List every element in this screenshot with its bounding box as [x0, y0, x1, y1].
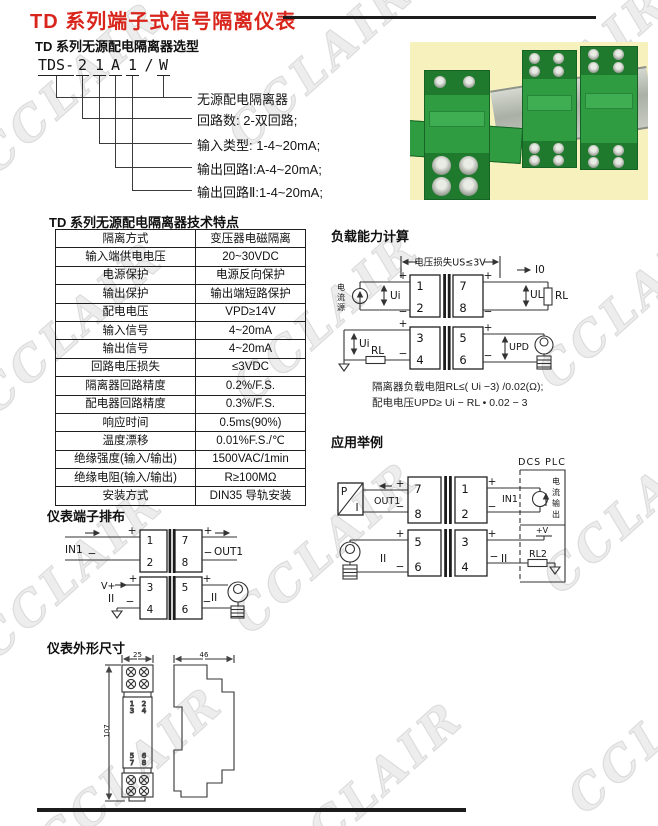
- minus-sign: −: [396, 561, 405, 573]
- terminal-number: 4: [142, 707, 147, 715]
- current-source-label: 源: [337, 303, 345, 312]
- terminal-block: [425, 71, 489, 95]
- screw-terminal: [126, 667, 148, 688]
- model-tree-line: [56, 97, 192, 98]
- specs-table: 隔离方式变压器电磁隔离 输入端供电电压20~30VDC 电源保护电源反向保护 输…: [55, 229, 306, 506]
- model-tree-line: [163, 76, 164, 97]
- table-row: 温度漂移0.01%F.S./℃: [56, 432, 306, 450]
- spec-value: VPD≥14V: [196, 303, 306, 321]
- model-selection-heading: TD 系列无源配电隔离器选型: [35, 36, 199, 55]
- terminal-number: 3: [416, 331, 423, 345]
- spec-value: 4~20mA: [196, 340, 306, 358]
- model-tree-line: [115, 76, 116, 167]
- isolator-module-front: [424, 70, 490, 200]
- plus-sign: +: [128, 525, 137, 537]
- application-heading: 应用举例: [331, 432, 383, 451]
- spec-value: 1500VAC/1min: [196, 450, 306, 468]
- model-code-out1: A: [109, 56, 122, 76]
- model-code-suffix: W: [157, 56, 170, 76]
- table-row: 回路电压损失≤3VDC: [56, 358, 306, 376]
- terminal-number: 4: [461, 560, 468, 574]
- terminal-number: 2: [461, 507, 468, 521]
- width-value: 25: [133, 651, 142, 659]
- in1-wiring: + − IN1: [487, 476, 540, 513]
- watermark: CCLAIR: [267, 690, 475, 826]
- spec-value: R≥100MΩ: [196, 469, 306, 487]
- out1-wiring: + − OUT1: [202, 525, 243, 560]
- model-tree-line: [132, 76, 133, 190]
- spec-label: 温度漂移: [56, 432, 196, 450]
- spec-value: 0.01%F.S./℃: [196, 432, 306, 450]
- spec-value: 变压器电磁隔离: [196, 230, 306, 248]
- terminal-number: 3: [130, 707, 134, 715]
- terminal-block: [523, 141, 576, 167]
- spec-label: 电源保护: [56, 266, 196, 284]
- model-tree-line: [99, 76, 100, 143]
- loop2-label: II: [108, 593, 114, 605]
- plus-v-label: +V: [536, 526, 549, 535]
- load-formula-2: 配电电压UPD≥ Ui − RL • 0.02 − 3: [372, 395, 528, 410]
- terminal-number: 3: [147, 582, 154, 594]
- in1-wiring: + − IN1: [65, 525, 140, 560]
- terminal-number: 6: [182, 604, 189, 616]
- terminal-number: 7: [182, 535, 189, 547]
- rl-label: RL: [555, 290, 568, 302]
- loop2-label: II: [501, 553, 507, 565]
- terminal-number: 3: [461, 535, 468, 549]
- minus-sign: −: [484, 350, 493, 362]
- minus-sign: −: [399, 306, 408, 318]
- spec-label: 响应时间: [56, 413, 196, 431]
- height-value: 107: [103, 724, 111, 737]
- isolator-module: [580, 46, 638, 170]
- isolator-blocks: 1 2 7 8 3 4 5 6: [140, 529, 202, 620]
- terminal-number: 1: [416, 279, 423, 293]
- depth-dimension: 46: [174, 651, 234, 663]
- terminal-number: 6: [414, 560, 421, 574]
- terminal-block: [581, 47, 637, 75]
- table-row: 绝缘强度(输入/输出)1500VAC/1min: [56, 450, 306, 468]
- current-source-label: 电: [337, 282, 345, 292]
- ground-icon: [112, 611, 122, 618]
- table-row: 电源保护电源反向保护: [56, 266, 306, 284]
- spec-value: 4~20mA: [196, 321, 306, 339]
- minus-sign: −: [204, 547, 213, 559]
- vplus-wiring: V+ + II −: [101, 573, 140, 618]
- ui-label: Ui: [359, 338, 370, 350]
- current-output-label: 电: [552, 476, 560, 486]
- terminal-number: 5: [182, 582, 189, 594]
- model-label-loops: 回路数: 2-双回路;: [197, 110, 297, 129]
- load-capacity-diagram: 电压损失US≤3V 1 2 7 8 3 4 5 6 电 流 源 Ui +: [332, 248, 654, 378]
- current-source-label: 流: [337, 292, 345, 302]
- terminal-number: 1: [461, 482, 468, 496]
- minus-sign: −: [88, 548, 97, 560]
- spec-label: 隔离器回路精度: [56, 377, 196, 395]
- table-row: 输出信号4~20mA: [56, 340, 306, 358]
- spec-label: 输出保护: [56, 285, 196, 303]
- rl2-label: RL2: [529, 549, 547, 560]
- io-label: I0: [535, 264, 545, 276]
- in1-label: IN1: [502, 494, 518, 505]
- terminal-number: 1: [147, 535, 154, 547]
- terminal-number: 4: [147, 604, 154, 616]
- terminal-layout-diagram: 1 2 7 8 3 4 5 6 + − IN1 + − OUT1 V+ +: [35, 522, 300, 630]
- spec-value: 0.5ms(90%): [196, 413, 306, 431]
- side-view: [174, 665, 234, 797]
- watermark: CCLAIR: [557, 630, 658, 825]
- load-resistor: [544, 288, 552, 305]
- spec-label: 配电器回路精度: [56, 395, 196, 413]
- plus-sign: +: [484, 322, 493, 334]
- dimensions-drawing: 1 2 3 4 5 6 7 8 25: [95, 650, 265, 808]
- terminal-number: 8: [182, 557, 189, 569]
- transmitter-icon: [535, 336, 553, 354]
- model-tree-line: [99, 143, 192, 144]
- table-row: 输入信号4~20mA: [56, 321, 306, 339]
- terminal-number: 7: [414, 482, 421, 496]
- spec-label: 回路电压损失: [56, 358, 196, 376]
- ground-icon: [339, 364, 349, 371]
- terminal-number: 8: [459, 301, 466, 315]
- pi-converter: P I: [338, 483, 363, 515]
- table-row: 配电电压VPD≥14V: [56, 303, 306, 321]
- ul-label: UL: [530, 289, 544, 301]
- rl2-resistor: [528, 560, 547, 567]
- table-row: 隔离方式变压器电磁隔离: [56, 230, 306, 248]
- loop2-label: II: [380, 553, 386, 565]
- spec-label: 安装方式: [56, 487, 196, 505]
- terminal-block: [523, 51, 576, 79]
- module-label: [527, 95, 572, 111]
- terminal-number: 6: [459, 353, 466, 367]
- terminal-number: 2: [416, 301, 423, 315]
- plus-sign: +: [484, 270, 493, 282]
- spec-value: DIN35 导轨安装: [196, 487, 306, 505]
- model-label-input: 输入类型: 1-4~20mA;: [197, 135, 320, 154]
- plus-sign: +: [129, 573, 138, 585]
- isolator-blocks: 1 2 7 8 3 4 5 6: [410, 274, 483, 370]
- voltage-loss-label: 电压损失US≤3V: [414, 257, 486, 269]
- terminal-number: 4: [416, 353, 423, 367]
- datasheet-page: CCLAIR CCLAIR CCLAIR CCLAIR CCLAIR CCLAI…: [0, 0, 658, 826]
- application-diagram: P I + − OUT1 7 8 1 2 5 6 3 4 DCS PLC: [330, 452, 658, 592]
- table-row: 隔离器回路精度0.2%/F.S.: [56, 377, 306, 395]
- terminal-number: 5: [459, 331, 466, 345]
- upd-label: UPD: [509, 342, 529, 353]
- model-label-out1: 输出回路Ⅰ:A-4~20mA;: [197, 159, 322, 178]
- pi-i-label: I: [355, 502, 358, 514]
- rl-label: RL: [371, 345, 384, 357]
- model-slash: /: [143, 56, 155, 74]
- terminal-block: [425, 153, 489, 199]
- model-tree-line: [56, 76, 57, 97]
- ground-icon: [550, 567, 560, 574]
- plus-sign: +: [204, 525, 213, 537]
- out1-label: OUT1: [374, 496, 400, 507]
- vplus-label: V+: [101, 581, 115, 592]
- model-code-input: 1: [93, 56, 106, 76]
- terminal-number: 8: [142, 759, 146, 767]
- spec-value: 20~30VDC: [196, 248, 306, 266]
- table-row: 输出保护输出端短路保护: [56, 285, 306, 303]
- pi-p-label: P: [341, 486, 347, 498]
- minus-sign: −: [126, 596, 135, 608]
- front-view: 1 2 3 4 5 6 7 8: [122, 665, 153, 801]
- model-tree-line: [115, 167, 192, 168]
- model-label-type: 无源配电隔离器: [197, 89, 288, 108]
- in1-label: IN1: [65, 544, 83, 556]
- plus-sign: +: [488, 528, 497, 540]
- terminal-number: 2: [147, 557, 154, 569]
- model-prefix: TDS-: [38, 56, 74, 76]
- minus-sign: −: [490, 551, 499, 563]
- spec-label: 绝缘电阻(输入/输出): [56, 469, 196, 487]
- depth-value: 46: [200, 651, 209, 659]
- loop2-label: II: [211, 592, 217, 604]
- out1-label: OUT1: [214, 546, 243, 558]
- ui-label: Ui: [390, 290, 401, 302]
- spec-label: 输入信号: [56, 321, 196, 339]
- load-formula-1: 隔离器负载电阻RL≤( Ui −3) /0.02(Ω);: [372, 379, 543, 394]
- plus-sign: +: [396, 478, 405, 490]
- model-tree-line: [82, 118, 192, 119]
- table-row: 响应时间0.5ms(90%): [56, 413, 306, 431]
- spec-value: ≤3VDC: [196, 358, 306, 376]
- plus-sign: +: [203, 573, 212, 585]
- current-source-loop: 电 流 源 Ui + −: [337, 270, 410, 318]
- current-output-label: 流: [552, 487, 560, 497]
- model-code-out2: 1: [126, 56, 139, 76]
- isolator-blocks: 7 8 1 2 5 6 3 4: [408, 476, 487, 577]
- table-row: 安装方式DIN35 导轨安装: [56, 487, 306, 505]
- out1-wiring: + − OUT1: [363, 478, 408, 513]
- plus-sign: +: [399, 318, 408, 330]
- spec-value: 0.3%/F.S.: [196, 395, 306, 413]
- spec-value: 电源反向保护: [196, 266, 306, 284]
- output-load-loop: + − I0 UL RL: [483, 264, 568, 318]
- minus-sign: −: [488, 501, 497, 513]
- load-heading: 负载能力计算: [331, 226, 409, 245]
- table-row: 绝缘电阻(输入/输出)R≥100MΩ: [56, 469, 306, 487]
- model-tree-line: [132, 190, 192, 191]
- module-label: [585, 93, 633, 109]
- terminal-number: 5: [414, 535, 421, 549]
- spec-value: 输出端短路保护: [196, 285, 306, 303]
- product-photo: [410, 42, 648, 200]
- current-output-label: 输: [552, 498, 560, 508]
- screw-terminal: [126, 775, 148, 795]
- current-output-label: 出: [552, 509, 560, 519]
- title-rule: [283, 16, 596, 19]
- spec-value: 0.2%/F.S.: [196, 377, 306, 395]
- input-resistor-loop: Ui RL + −: [339, 318, 410, 371]
- spec-label: 配电电压: [56, 303, 196, 321]
- transmitter-loop: + − UPD: [483, 322, 553, 369]
- width-dimension: 25: [122, 651, 153, 663]
- page-title: TD 系列端子式信号隔离仪表: [30, 5, 296, 34]
- model-label-out2: 输出回路Ⅱ:1-4~20mA;: [197, 182, 323, 201]
- plus-sign: +: [488, 476, 497, 488]
- model-code-loops: 2: [76, 56, 89, 76]
- terminal-number: 7: [130, 759, 134, 767]
- rl-resistor: [366, 357, 385, 364]
- isolator-module: [522, 50, 577, 168]
- spec-label: 输入端供电电压: [56, 248, 196, 266]
- terminal-number: 7: [459, 279, 466, 293]
- transmitter-wiring: + − II: [340, 528, 408, 579]
- loop2-transmitter-wiring: + − II: [202, 573, 248, 618]
- plus-sign: +: [399, 270, 408, 282]
- terminal-number: 8: [414, 507, 421, 521]
- spec-label: 绝缘强度(输入/输出): [56, 450, 196, 468]
- table-row: 配电器回路精度0.3%/F.S.: [56, 395, 306, 413]
- table-row: 输入端供电电压20~30VDC: [56, 248, 306, 266]
- minus-sign: −: [399, 348, 408, 360]
- current-source-icon: [533, 492, 548, 507]
- dcs-plc-label: DCS PLC: [518, 457, 566, 468]
- plus-sign: +: [396, 528, 405, 540]
- footer-rule: [37, 808, 466, 812]
- terminal-block: [581, 143, 637, 169]
- minus-sign: −: [484, 306, 493, 318]
- spec-label: 输出信号: [56, 340, 196, 358]
- module-label: [429, 111, 485, 127]
- spec-label: 隔离方式: [56, 230, 196, 248]
